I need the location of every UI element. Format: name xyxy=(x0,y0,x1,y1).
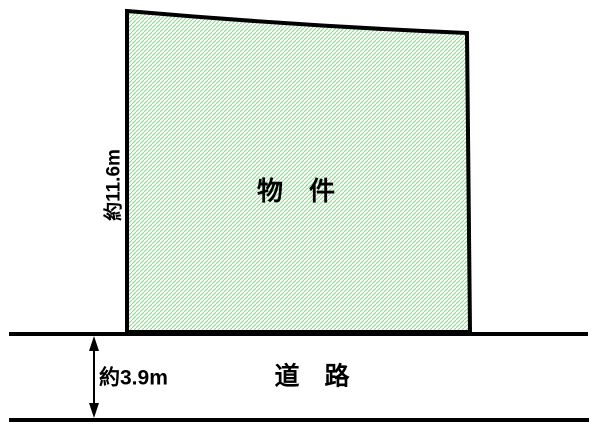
depth-dimension-label: 約11.6m xyxy=(105,149,124,221)
arrow-down-head-icon xyxy=(89,403,99,418)
property-parcel-shape xyxy=(127,11,470,332)
road-label: 道 路 xyxy=(274,365,349,390)
road-width-label: 約3.9m xyxy=(99,368,168,389)
road-width-arrow xyxy=(89,336,99,418)
land-plot-diagram: 約11.6m 物 件 約3.9m 道 路 xyxy=(0,0,600,433)
arrow-up-head-icon xyxy=(89,336,99,351)
property-label: 物 件 xyxy=(257,178,335,204)
